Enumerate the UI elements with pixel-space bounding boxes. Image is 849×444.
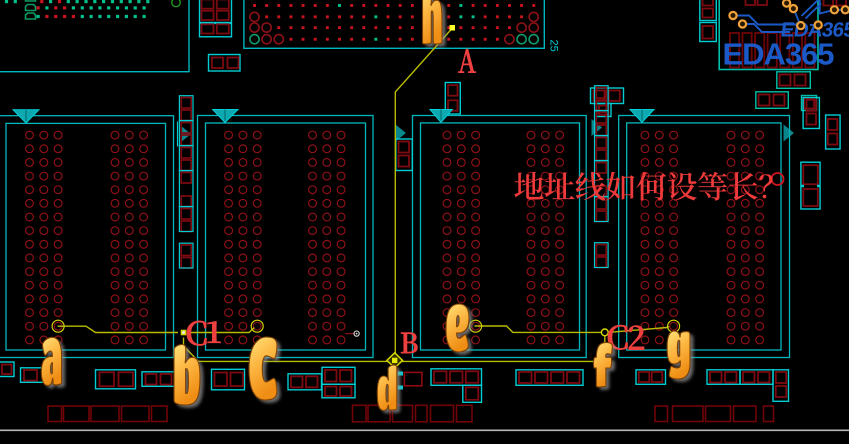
svg-text:EDA365: EDA365 [723,37,835,72]
svg-text:25: 25 [548,40,560,52]
